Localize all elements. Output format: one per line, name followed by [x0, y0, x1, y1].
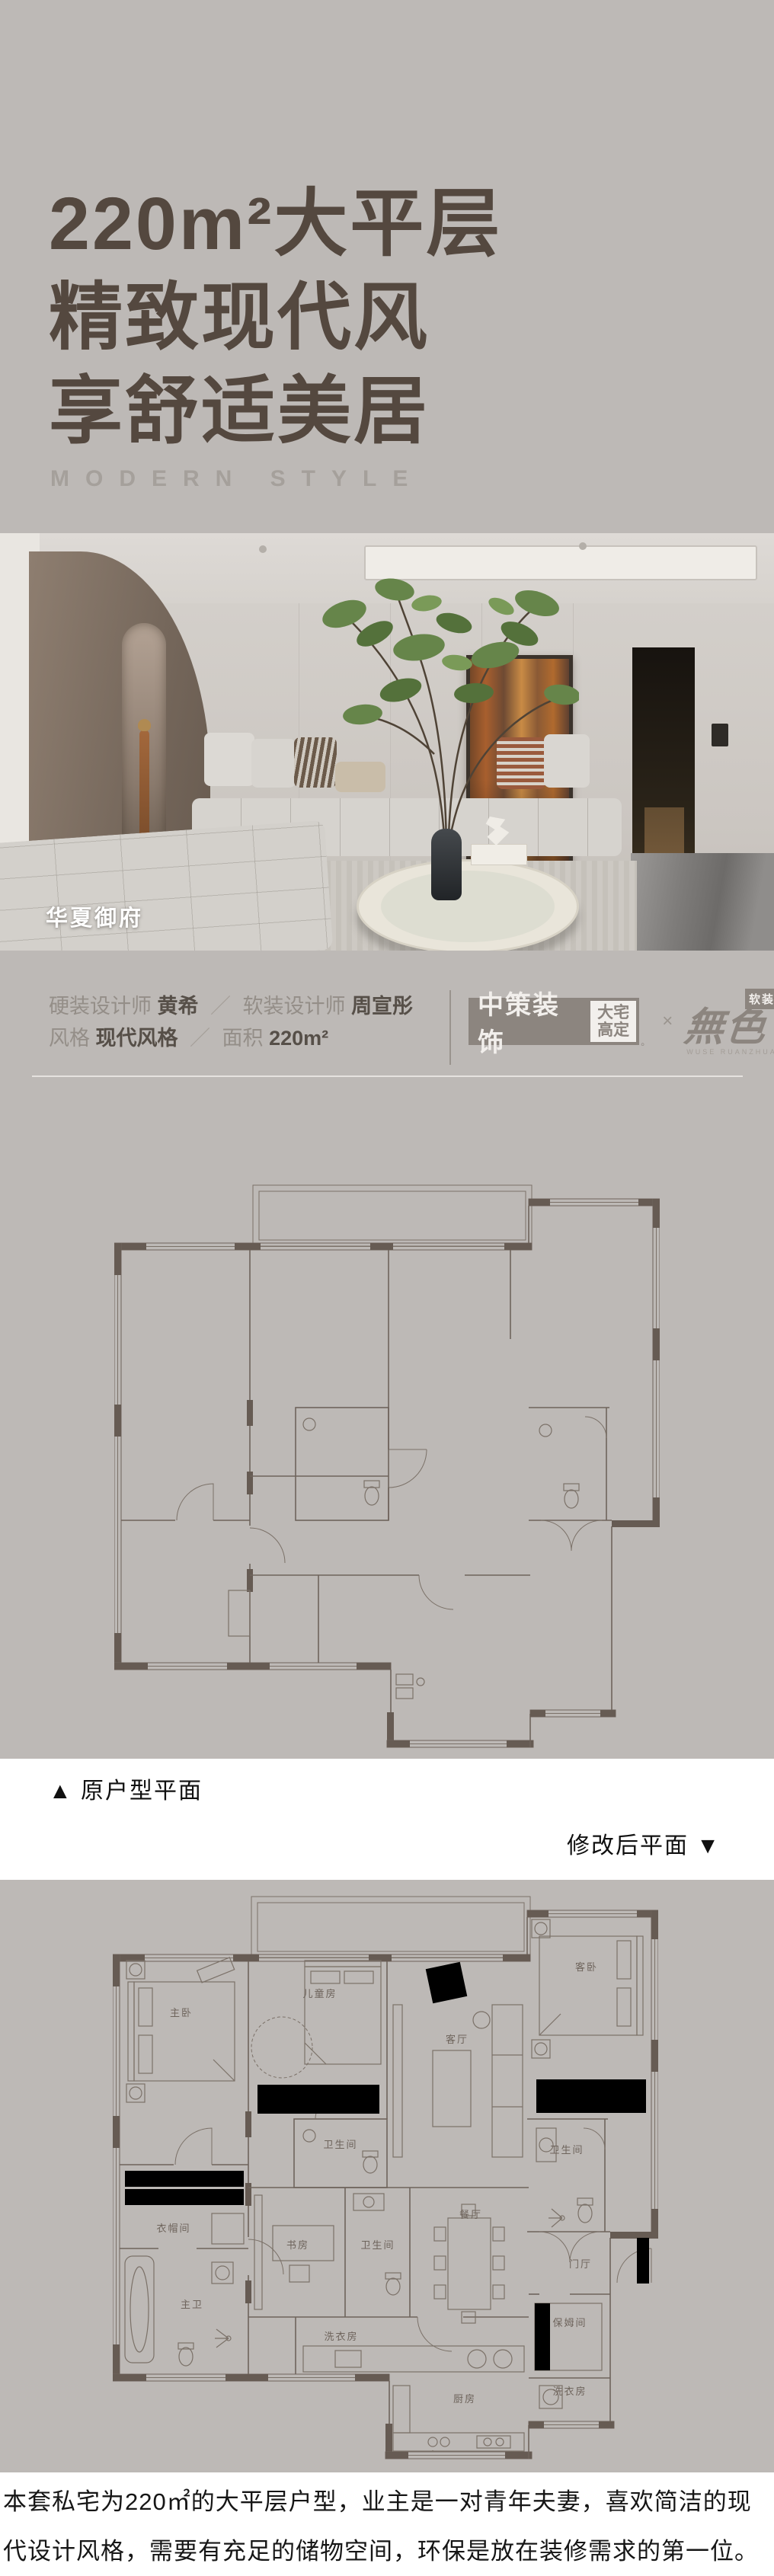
wuse-logo: 無色 软装 WUSE RUANZHUANG [685, 993, 774, 1050]
badge-line-2: 高定 [597, 1021, 629, 1039]
room-label: 卫生间 [549, 2144, 584, 2156]
room-label: 客卧 [575, 1961, 598, 1973]
brand-logos: 中策装饰 大宅 高定 。 × 無色 软装 WUSE RUANZHUANG [469, 995, 774, 1048]
books-stack [471, 844, 527, 865]
room-label: 书房 [286, 2239, 309, 2251]
area-value: 220m² [269, 1027, 328, 1050]
poster-page: 220m²大平层 精致现代风 享舒适美居 MODERN STYLE [0, 0, 774, 2568]
meta-line-1: 硬装设计师 黄希 ／ 软装设计师 周宣彤 [49, 990, 413, 1022]
soft-designer-value: 周宣彤 [351, 995, 413, 1018]
title-line-1: 220m²大平层 [49, 177, 502, 270]
shower-symbol [549, 2209, 565, 2227]
plan2-terrace [251, 1897, 530, 1958]
plant-vase [431, 829, 462, 900]
hard-designer-value: 黄希 [158, 995, 199, 1018]
room-label: 洗衣房 [324, 2331, 358, 2342]
hero-section: 220m²大平层 精致现代风 享舒适美居 MODERN STYLE [0, 0, 774, 1759]
zhongce-logo: 中策装饰 大宅 高定 [469, 998, 639, 1045]
modified-floor-plan: 主卧儿童房客厅客卧卫生间卫生间衣帽间主卫书房卫生间餐厅门厅洗衣房保姆间厨房洗衣房 [113, 1890, 658, 2466]
room-label: 客厅 [446, 2034, 469, 2045]
wall-switch [712, 724, 728, 746]
meta-separator: ／ [204, 995, 237, 1018]
modified-plan-caption: 修改后平面 ▼ [567, 1827, 721, 1860]
area-label: 面积 [222, 1027, 264, 1050]
soft-designer-label: 软装设计师 [243, 995, 346, 1018]
modified-plan-panel: 主卧儿童房客厅客卧卫生间卫生间衣帽间主卫书房卫生间餐厅门厅洗衣房保姆间厨房洗衣房 [0, 1880, 774, 2472]
page-title: 220m²大平层 精致现代风 享舒适美居 [49, 177, 502, 458]
sculpture-head [138, 719, 151, 731]
style-value: 现代风格 [96, 1027, 178, 1050]
shower-symbol [215, 2329, 231, 2347]
logo-mark: 。 [641, 1035, 650, 1048]
room-label: 保姆间 [552, 2317, 587, 2328]
pillow [204, 733, 254, 786]
plant-branches [305, 564, 579, 861]
room-label: 洗衣房 [552, 2386, 587, 2397]
plan2-interior-walls [120, 1961, 651, 2378]
original-floor-plan [114, 1179, 660, 1755]
room-label: 主卧 [170, 2007, 193, 2018]
original-plan-caption: ▲ 原户型平面 [49, 1772, 203, 1805]
title-line-2: 精致现代风 [49, 270, 502, 364]
vertical-separator [449, 990, 451, 1065]
room-label: 主卫 [181, 2299, 203, 2310]
meta-line-2: 风格 现代风格 ／ 面积 220m² [49, 1022, 413, 1054]
plan1-outer-walls [114, 1199, 660, 1747]
marble-floor [631, 853, 774, 951]
sculpture [139, 730, 149, 838]
room-label: 衣帽间 [156, 2223, 190, 2234]
room-label: 厨房 [453, 2393, 476, 2405]
room-label: 卫生间 [360, 2239, 395, 2251]
title-line-3: 享舒适美居 [49, 364, 502, 458]
spotlight [259, 545, 267, 553]
zhongce-logo-text: 中策装饰 [478, 984, 590, 1059]
dazhai-gaoding-badge: 大宅 高定 [590, 1001, 636, 1042]
section-divider-line [32, 1075, 743, 1077]
collab-x-mark: × [650, 1011, 685, 1032]
photo-watermark: 华夏御府 [46, 900, 143, 932]
wuse-caption: WUSE RUANZHUANG [686, 1048, 774, 1056]
subtitle-modern-style: MODERN STYLE [50, 466, 424, 492]
project-meta: 硬装设计师 黄希 ／ 软装设计师 周宣彤 风格 现代风格 ／ 面积 220m² [49, 990, 413, 1054]
ruanzhuang-badge: 软装 [745, 989, 774, 1009]
spotlight [579, 542, 587, 550]
plan1-interior-walls [121, 1250, 612, 1699]
badge-line-1: 大宅 [597, 1004, 629, 1021]
pillow [251, 739, 296, 788]
style-label: 风格 [49, 1027, 90, 1050]
living-room-photo: 华夏御府 [0, 533, 774, 951]
room-label: 卫生间 [323, 2139, 357, 2150]
footer-paragraph: 本套私宅为220㎡的大平层户型，业主是一对青年夫妻，喜欢简洁的现代设计风格，需要… [3, 2477, 772, 2576]
coffee-table [357, 859, 579, 951]
room-label: 餐厅 [459, 2209, 482, 2220]
room-label: 儿童房 [302, 1988, 337, 1999]
meta-separator: ／ [184, 1027, 216, 1050]
room-label: 门厅 [569, 2258, 592, 2270]
hard-designer-label: 硬装设计师 [49, 995, 152, 1018]
plan1-terrace [253, 1185, 532, 1246]
